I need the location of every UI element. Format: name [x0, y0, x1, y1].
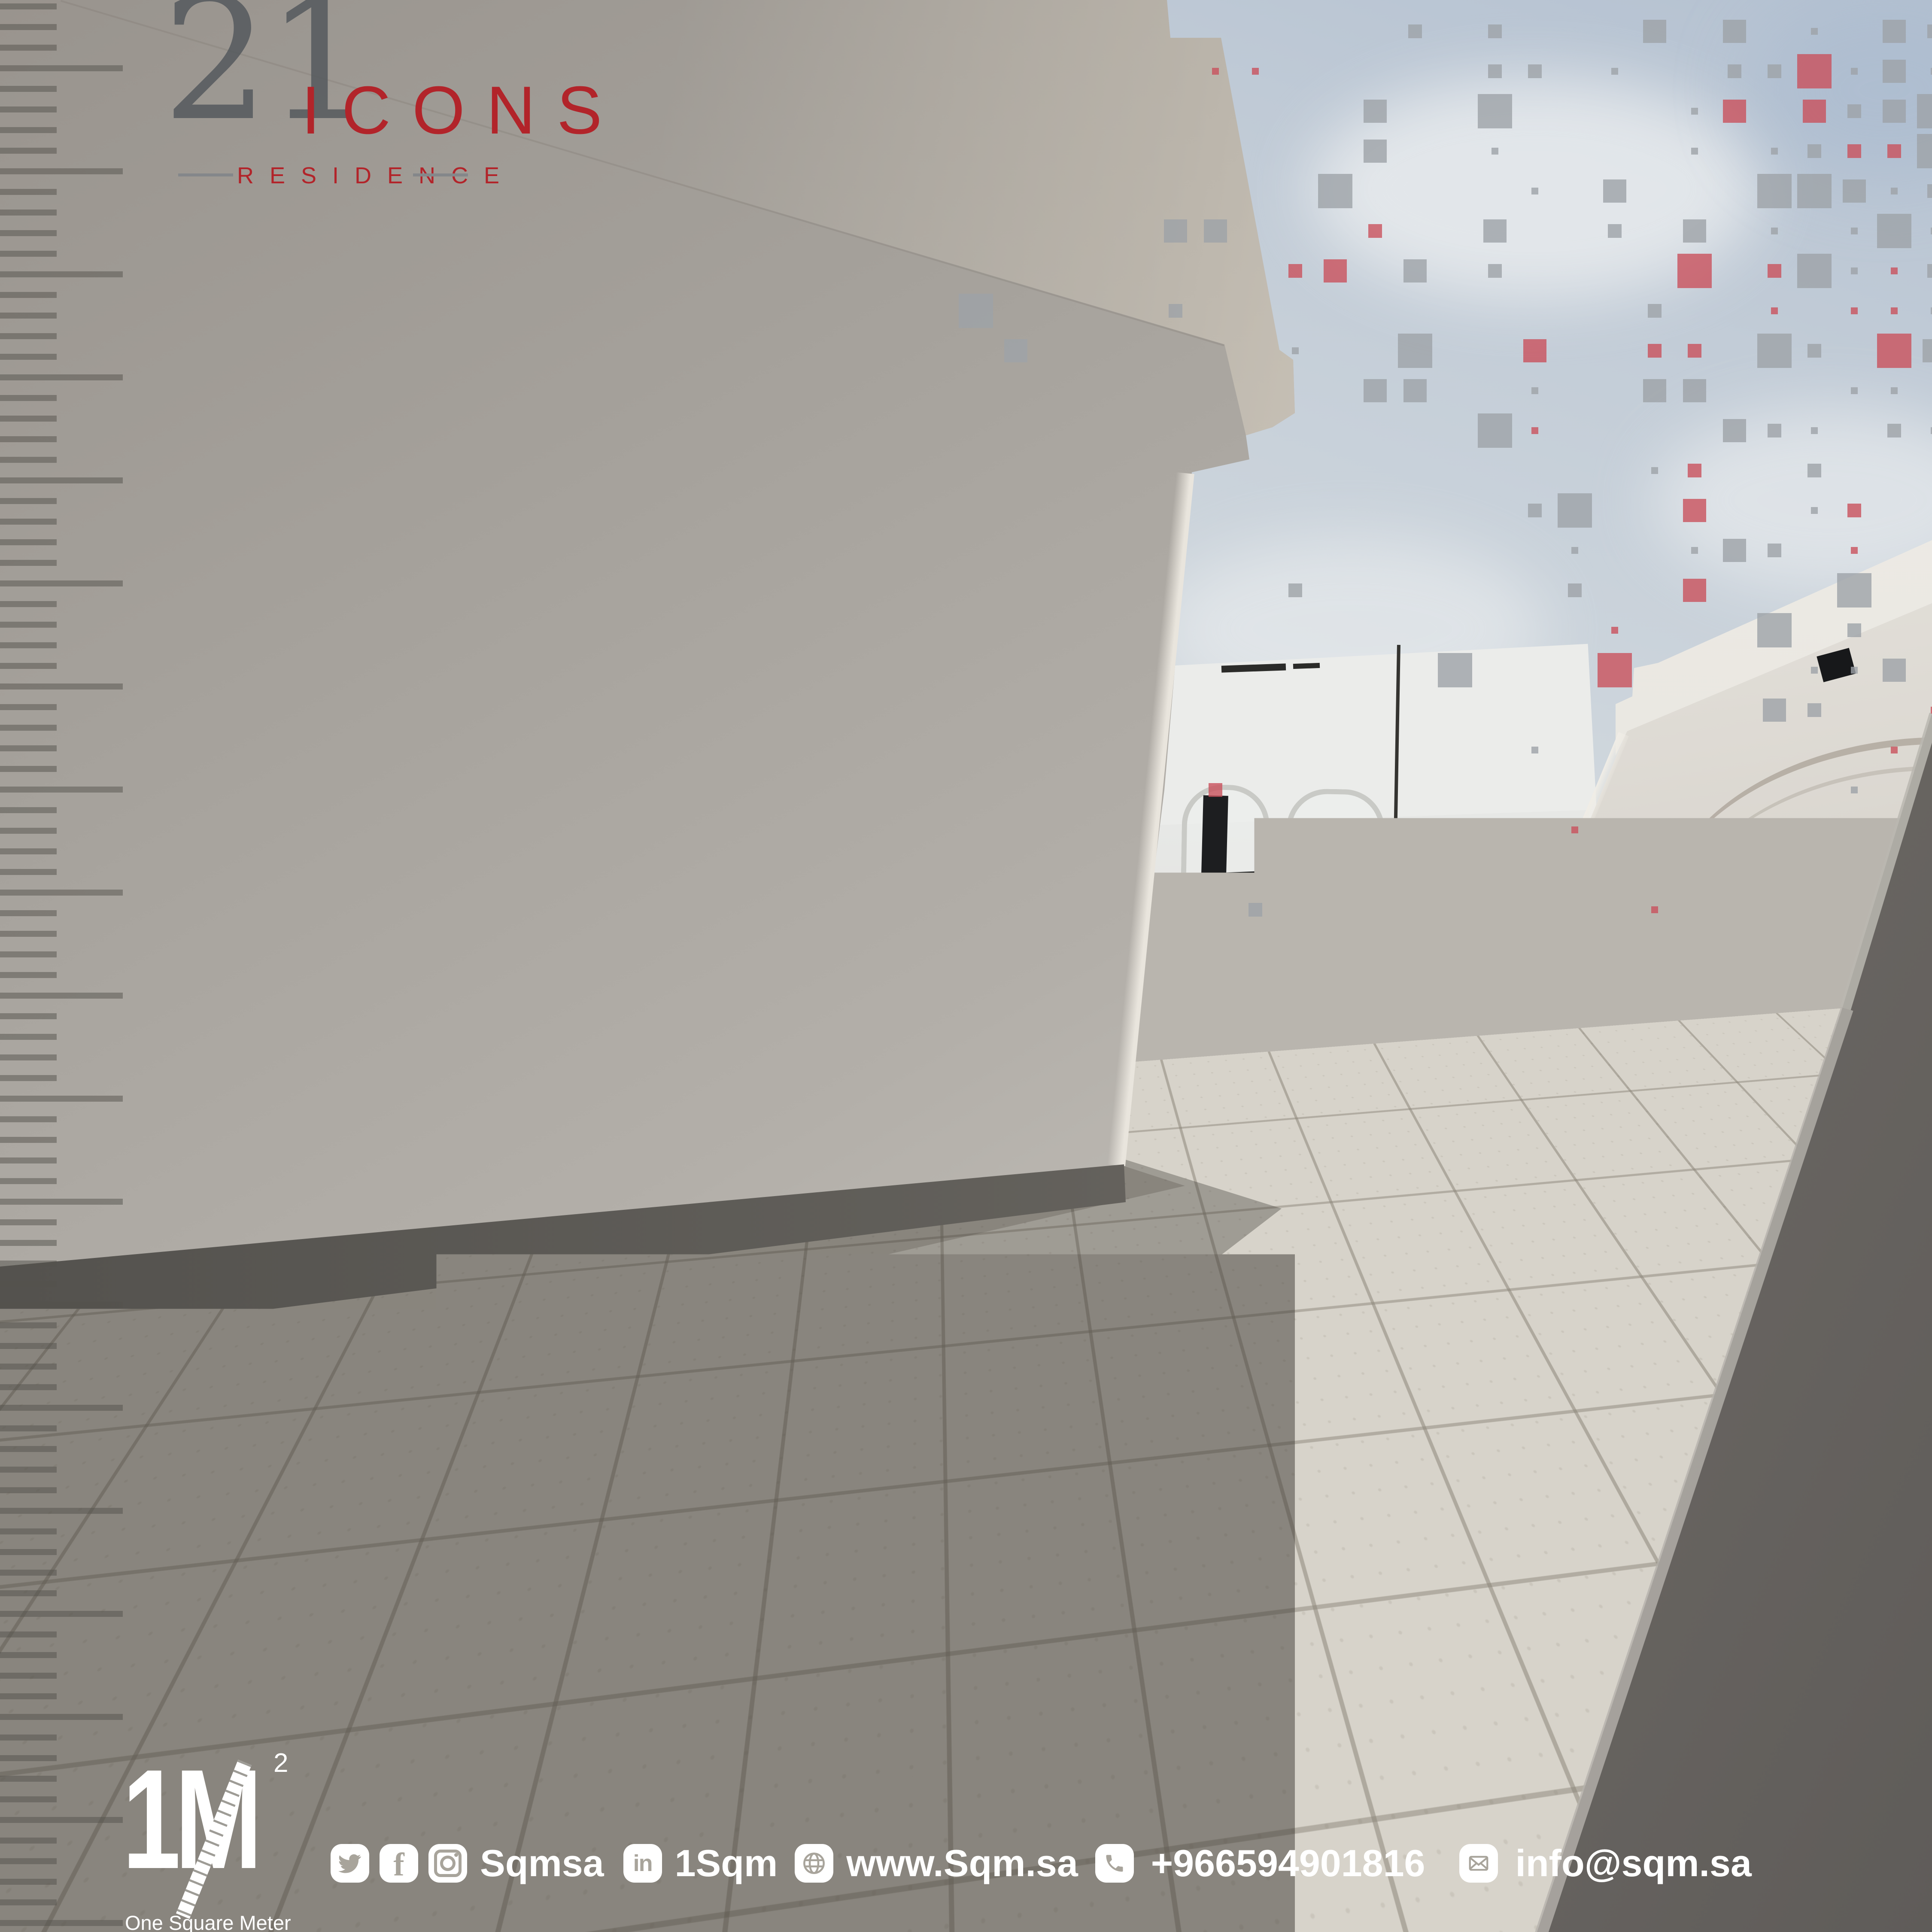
ruler-tick [0, 1034, 57, 1040]
ruler-tick [0, 787, 123, 793]
pattern-square [1807, 703, 1821, 717]
pattern-square [1723, 539, 1746, 562]
company-tagline: One Square Meter [125, 1911, 291, 1932]
ruler-tick [0, 416, 57, 422]
pattern-square [1598, 653, 1632, 687]
ruler-tick [0, 1838, 57, 1844]
brand-subtitle: RESIDENCE [237, 162, 515, 189]
pattern-square [1209, 783, 1222, 797]
ruler-tick [0, 1570, 57, 1576]
pattern-square [1891, 188, 1898, 194]
pattern-square [1691, 108, 1698, 115]
ruler-tick [0, 745, 57, 751]
ruler-tick [0, 1054, 57, 1060]
email-text: info@sqm.sa [1515, 1844, 1751, 1882]
ruler-tick [0, 993, 123, 999]
pattern-square [1797, 54, 1832, 88]
pattern-square [1169, 304, 1182, 318]
pattern-square [1288, 583, 1302, 597]
pattern-square [1523, 339, 1546, 362]
pattern-square [1931, 707, 1932, 714]
pattern-square [1851, 667, 1858, 674]
ruler-tick [0, 313, 57, 319]
pattern-square [1883, 60, 1906, 83]
pattern-square [1891, 267, 1898, 274]
ruler-tick [0, 271, 123, 277]
pattern-square [1651, 906, 1658, 913]
ruler-tick [0, 890, 123, 896]
pattern-square [1438, 653, 1472, 687]
pattern-square [1723, 419, 1746, 442]
ruler-tick [0, 1013, 57, 1019]
pattern-square [1771, 307, 1778, 314]
ruler-tick [0, 1735, 57, 1741]
ruler-tick [0, 1611, 123, 1617]
ruler-tick [0, 848, 57, 854]
company-logo-superscript: 2 [273, 1748, 288, 1778]
pattern-square [1807, 344, 1821, 358]
ruler-tick [0, 642, 57, 648]
pattern-square [1891, 387, 1898, 394]
pattern-square [1528, 64, 1542, 78]
phone-icon [1095, 1844, 1134, 1883]
pattern-square [1931, 307, 1932, 314]
pattern-square [1723, 100, 1746, 123]
ruler-tick [0, 1364, 57, 1370]
pattern-square [1403, 259, 1427, 283]
pattern-square [1688, 464, 1701, 477]
ruler-tick [0, 395, 57, 401]
ruler-tick [0, 1879, 57, 1885]
pattern-square [1843, 179, 1866, 203]
ruler-tick [0, 1920, 123, 1926]
ruler-tick [0, 1673, 57, 1679]
ruler-tick [0, 1116, 57, 1122]
ruler-tick [0, 1096, 123, 1102]
ruler-tick [0, 1384, 57, 1390]
pattern-square [1723, 20, 1746, 43]
pattern-square [1683, 499, 1706, 522]
ruler-tick [0, 601, 57, 607]
ruler-tick [0, 725, 57, 731]
ruler-tick [0, 663, 57, 669]
pattern-square [1851, 547, 1858, 554]
pattern-square [1768, 424, 1781, 437]
pattern-square [1883, 20, 1906, 43]
pattern-square [1851, 787, 1858, 793]
ruler-tick [0, 683, 123, 690]
linkedin-icon: in [623, 1844, 662, 1883]
pattern-square [1923, 339, 1932, 362]
pattern-square [1763, 699, 1786, 722]
twitter-icon [331, 1844, 369, 1883]
ruler-tick [0, 1487, 57, 1493]
pattern-square [1364, 100, 1387, 123]
brand-logo: 21 ICONS RESIDENCE [0, 0, 558, 223]
ruler-tick [0, 1755, 57, 1761]
pattern-square [1531, 747, 1538, 753]
pattern-square [1931, 228, 1932, 234]
pattern-square [1398, 334, 1432, 368]
ruler-tick [0, 1631, 57, 1637]
ruler-tick [0, 436, 57, 442]
pattern-square [1648, 344, 1662, 358]
pattern-square [1837, 573, 1871, 608]
ruler-tick [0, 1796, 57, 1802]
pattern-square [1811, 427, 1818, 434]
pattern-square [1771, 228, 1778, 234]
pattern-square [1204, 219, 1227, 243]
ruler-tick [0, 1549, 57, 1555]
pattern-square [1851, 387, 1858, 394]
ruler-tick [0, 560, 57, 566]
pattern-square [1927, 184, 1932, 198]
pattern-square [1891, 747, 1898, 753]
ruler-tick [0, 1652, 57, 1658]
ruler-tick [0, 1693, 57, 1699]
pattern-square [1757, 334, 1792, 368]
pattern-square [1728, 64, 1741, 78]
pattern-square [1683, 579, 1706, 602]
ruler-tick [0, 1858, 57, 1864]
pattern-square [1768, 64, 1781, 78]
pattern-square [1004, 339, 1027, 362]
pattern-square [1292, 347, 1299, 354]
ruler-tick [0, 1281, 57, 1287]
linkedin-handle: 1Sqm [675, 1844, 778, 1882]
pattern-square [1768, 544, 1781, 557]
pattern-square [1571, 826, 1578, 833]
pattern-square [1771, 148, 1778, 155]
ruler-tick [0, 1137, 57, 1143]
pattern-square [1252, 68, 1259, 75]
pattern-square [1691, 547, 1698, 554]
ruler-tick [0, 1322, 57, 1328]
ruler-tick [0, 807, 57, 813]
pattern-square [1608, 224, 1622, 238]
phone-number: +966594901816 [1151, 1844, 1425, 1882]
ruler-tick [0, 1157, 57, 1163]
facebook-icon: f [380, 1844, 418, 1883]
ruler-tick [0, 1405, 123, 1411]
pattern-square [1811, 28, 1818, 35]
pattern-square [1797, 254, 1832, 288]
pattern-square [1807, 464, 1821, 477]
floor-stain [670, 1698, 745, 1739]
pattern-square [1408, 24, 1422, 38]
pattern-square [1531, 188, 1538, 194]
pattern-square [1648, 304, 1662, 318]
ruler-tick [0, 477, 123, 483]
pattern-square [1887, 424, 1901, 437]
pattern-square [1851, 228, 1858, 234]
ruler-tick [0, 580, 123, 586]
pattern-square [1927, 264, 1932, 278]
pattern-square [1492, 148, 1498, 155]
ruler-tick [0, 1590, 57, 1596]
ruler-tick [0, 1261, 57, 1267]
pattern-square [1212, 68, 1219, 75]
pattern-square [1488, 264, 1502, 278]
ruler-tick [0, 1776, 57, 1782]
promo-flyer: 21 ICONS RESIDENCE 1M 2 One Square Meter… [0, 0, 1932, 1932]
ruler-tick [0, 1302, 123, 1308]
ruler-tick [0, 333, 57, 339]
pattern-square [1488, 24, 1502, 38]
ruler-tick [0, 931, 57, 937]
ruler-tick [0, 251, 57, 257]
ruler-tick [0, 766, 57, 772]
pattern-square [1931, 427, 1932, 434]
pattern-square [1811, 507, 1818, 514]
pattern-square [959, 294, 993, 328]
ruler-tick [0, 1343, 57, 1349]
ruler-tick [0, 1899, 57, 1905]
pattern-square [1483, 219, 1507, 243]
pattern-square [1688, 344, 1701, 358]
pattern-square [1683, 219, 1706, 243]
globe-icon [795, 1844, 833, 1883]
brand-name: ICONS [301, 76, 623, 144]
pattern-square [1683, 379, 1706, 402]
pattern-square [1643, 379, 1666, 402]
pattern-square [1364, 140, 1387, 163]
ruler-tick [0, 292, 57, 298]
website-text: www.Sqm.sa [846, 1844, 1078, 1882]
ruler-tick [0, 539, 57, 545]
ruler-tick [0, 1240, 57, 1246]
pattern-square [1847, 104, 1861, 118]
email-icon [1459, 1844, 1498, 1883]
pattern-square [1847, 504, 1861, 517]
social-handle: Sqmsa [480, 1844, 604, 1882]
pattern-square [1528, 504, 1542, 517]
pattern-square [1324, 259, 1347, 283]
brand-line-right [413, 173, 468, 176]
pattern-square [1643, 20, 1666, 43]
pattern-square [1558, 493, 1592, 528]
pattern-square [1611, 68, 1618, 75]
pattern-square [1651, 467, 1658, 474]
pattern-square [1488, 64, 1502, 78]
pattern-square [1571, 547, 1578, 554]
pattern-square [1847, 144, 1861, 158]
pattern-square [1851, 267, 1858, 274]
pattern-square [1931, 68, 1932, 75]
pattern-square [1531, 427, 1538, 434]
ruler-tick [0, 869, 57, 875]
pattern-square [1288, 264, 1302, 278]
ruler-tick [0, 1714, 123, 1720]
ruler-tick [0, 1219, 57, 1225]
ruler-tick [0, 1425, 57, 1431]
pattern-square [1531, 387, 1538, 394]
pattern-square [1811, 667, 1818, 674]
pattern-square [1887, 144, 1901, 158]
pattern-square [1603, 179, 1626, 203]
pattern-square [1249, 903, 1262, 917]
pattern-square [1883, 100, 1906, 123]
pattern-square [1364, 379, 1387, 402]
pattern-square [1318, 174, 1352, 208]
ruler-tick [0, 828, 57, 834]
pattern-square [1757, 613, 1792, 647]
ruler-tick [0, 1446, 57, 1452]
pattern-square [1927, 24, 1932, 38]
ruler-tick [0, 1178, 57, 1184]
contact-bar: f Sqmsa in 1Sqm www.Sqm.sa +966594901816… [331, 1842, 1752, 1885]
ruler-tick [0, 374, 123, 380]
pattern-square [1568, 583, 1582, 597]
ruler-tick [0, 519, 57, 525]
pattern-square [1877, 334, 1911, 368]
brand-line-left [178, 173, 233, 176]
pattern-square [1883, 659, 1906, 682]
pattern-square [1757, 174, 1792, 208]
company-logo: 1M 2 One Square Meter [122, 1754, 303, 1932]
ruler-tick [0, 498, 57, 504]
pattern-square [1891, 307, 1898, 314]
ruler-graphic [0, 0, 129, 1932]
pattern-square [1851, 307, 1858, 314]
floor-stain [550, 1887, 580, 1906]
pattern-square [1917, 94, 1932, 128]
pattern-square [1368, 224, 1382, 238]
pattern-square [1847, 623, 1861, 637]
ruler-tick [0, 972, 57, 978]
pattern-square [1807, 144, 1821, 158]
instagram-icon [428, 1844, 467, 1883]
ruler-tick [0, 1199, 123, 1205]
pattern-square [1803, 100, 1826, 123]
ruler-tick [0, 457, 57, 463]
pattern-square [1691, 148, 1698, 155]
pattern-square [1164, 219, 1187, 243]
ruler-tick [0, 1508, 123, 1514]
pattern-square [1851, 68, 1858, 75]
pattern-square [1478, 94, 1512, 128]
pattern-square [1478, 413, 1512, 448]
pattern-square [1917, 134, 1932, 168]
ruler-tick [0, 1075, 57, 1081]
ruler-tick [0, 1528, 57, 1534]
ruler-tick [0, 704, 57, 710]
ruler-tick [0, 1467, 57, 1473]
ruler-tick [0, 951, 57, 957]
pattern-square [1877, 214, 1911, 248]
pattern-square [1677, 254, 1712, 288]
ruler-tick [0, 910, 57, 916]
pattern-square [1768, 264, 1781, 278]
ruler-tick [0, 1817, 123, 1823]
pattern-square [1611, 627, 1618, 634]
ruler-tick [0, 622, 57, 628]
ruler-tick [0, 354, 57, 360]
pattern-square [1797, 174, 1832, 208]
ruler-tick [0, 230, 57, 236]
pattern-square [1403, 379, 1427, 402]
